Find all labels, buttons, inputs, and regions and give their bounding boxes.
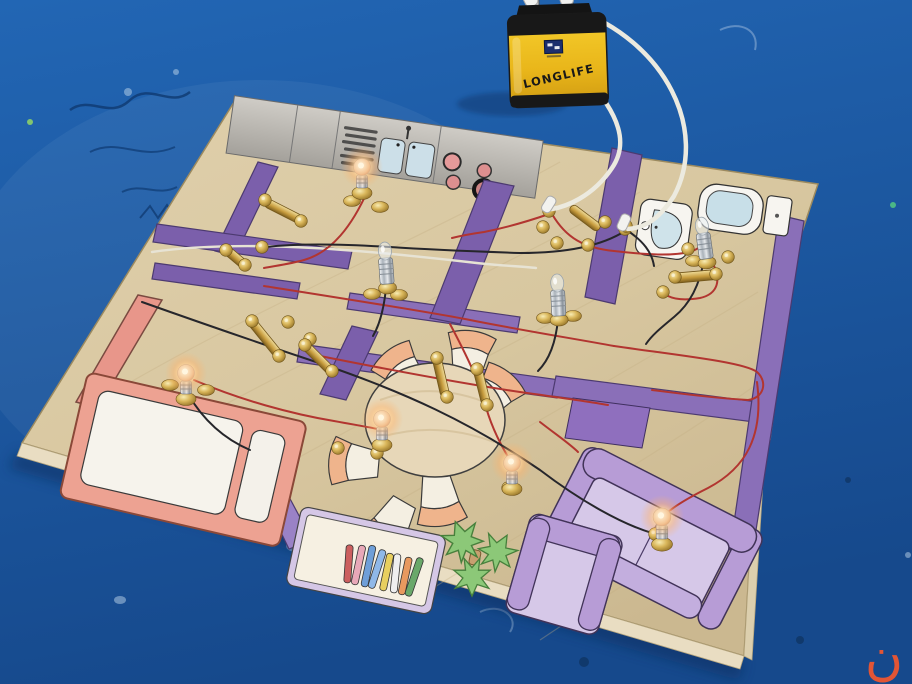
brass-fastener xyxy=(551,237,564,250)
brass-fastener xyxy=(299,339,312,352)
brass-fastener xyxy=(657,286,670,299)
brass-fastener xyxy=(220,244,233,257)
table-paint-speck xyxy=(890,202,896,208)
brass-fastener xyxy=(239,259,252,272)
brass-fastener xyxy=(710,268,723,281)
brass-fastener xyxy=(273,350,286,363)
scene-canvas: LONGLIFE ن xyxy=(0,0,912,684)
brass-fastener xyxy=(256,241,269,254)
brass-fastener xyxy=(259,194,272,207)
brass-fastener xyxy=(537,221,550,234)
brass-fastener xyxy=(481,399,494,412)
brass-fastener xyxy=(599,216,612,229)
brass-fastener xyxy=(441,391,454,404)
brass-pad xyxy=(372,202,389,213)
brass-fastener xyxy=(295,215,308,228)
brass-pad xyxy=(364,289,381,300)
brass-fastener xyxy=(246,315,259,328)
photo-circuit-house-board: LONGLIFE ن xyxy=(0,0,912,684)
brass-fastener xyxy=(582,239,595,252)
battery: LONGLIFE xyxy=(506,0,608,108)
brass-fastener xyxy=(669,271,682,284)
brass-fastener xyxy=(332,442,345,455)
brass-fastener xyxy=(722,251,735,264)
brass-fastener xyxy=(471,363,484,376)
watermark-logo: ن xyxy=(865,627,903,684)
brass-fastener xyxy=(326,365,339,378)
brass-fastener xyxy=(682,243,695,256)
table-paint-speck xyxy=(27,119,33,125)
brass-fastener xyxy=(431,352,444,365)
brass-fastener xyxy=(282,316,295,329)
